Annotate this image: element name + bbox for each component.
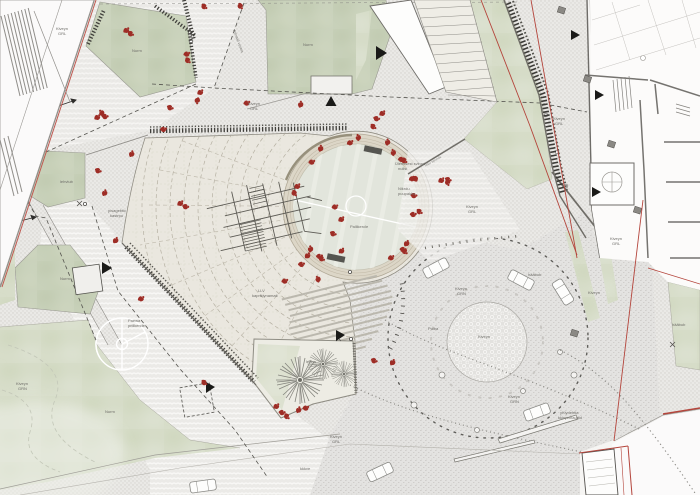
svg-text:nullst: nullst [398,166,408,171]
svg-text:prillkercle: prillkercle [128,323,146,328]
svg-text:GRL: GRL [332,439,341,444]
svg-text:Nurm: Nurm [105,409,115,414]
svg-text:Nurm: Nurm [132,48,142,53]
svg-text:GRL: GRL [468,209,477,214]
svg-text:lehvtub: lehvtub [60,179,74,184]
svg-text:Pulba: Pulba [428,326,439,331]
svg-text:kapriklynamati: kapriklynamati [252,293,278,298]
svg-text:GRL: GRL [555,121,564,126]
svg-text:kkkve: kkkve [300,466,311,471]
svg-text:hääbub: hääbub [672,322,686,327]
svg-text:GRN: GRN [18,386,27,391]
svg-text:GRL: GRL [250,106,259,111]
svg-text:kkivyeinaudid: kkivyeinaudid [558,415,582,420]
svg-text:puupakku: puupakku [398,191,415,196]
svg-text:hääbub: hääbub [528,272,542,277]
svg-text:Nurm: Nurm [303,42,313,47]
svg-text:Kiveyn: Kiveyn [588,290,600,295]
svg-text:lehba: lehba [306,359,317,364]
svg-text:kastrpu: kastrpu [110,213,123,218]
svg-text:GRL: GRL [58,31,67,36]
svg-text:GRL: GRL [612,241,621,246]
svg-text:Kiveyn: Kiveyn [478,334,490,339]
svg-text:GRN: GRN [510,399,519,404]
svg-text:Nurm: Nurm [60,276,70,281]
svg-text:Pallikercle: Pallikercle [350,224,369,229]
svg-text:GRN: GRN [457,291,466,296]
